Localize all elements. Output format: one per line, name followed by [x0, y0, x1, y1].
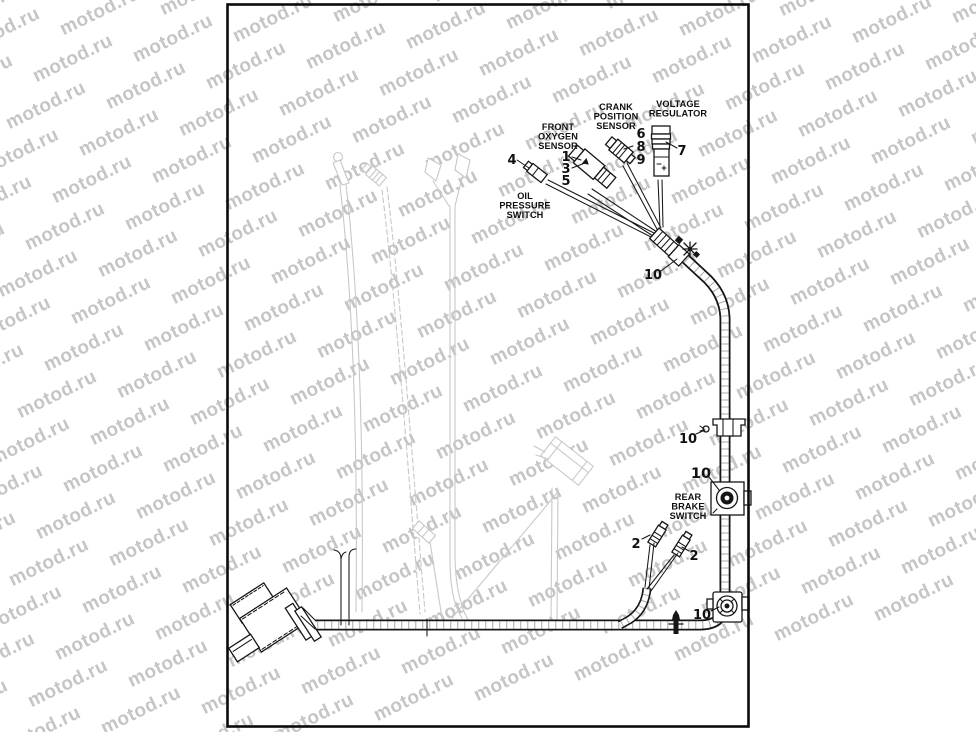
callout-2b: 2 — [689, 549, 698, 564]
label-oil-pressure-switch: OIL PRESSURE SWITCH — [499, 191, 550, 220]
callout-5: 5 — [561, 174, 570, 189]
crank-position-sensor-connector — [604, 135, 637, 166]
label-line: REAR — [675, 492, 702, 502]
label-line: PRESSURE — [499, 201, 550, 211]
callout-9: 9 — [636, 153, 645, 168]
wiring-harness-diagram: FRONT OXYGEN SENSOR CRANK POSITION SENSO… — [0, 0, 976, 732]
callout-2a: 2 — [631, 537, 640, 552]
label-front-oxygen-sensor: FRONT OXYGEN SENSOR — [538, 122, 578, 151]
faint-relay-connector — [452, 437, 593, 624]
label-line: OXYGEN — [538, 132, 578, 142]
bolt-star-icon — [683, 242, 697, 256]
callout-10-brake: 10 — [691, 466, 711, 482]
label-line: SENSOR — [538, 141, 578, 151]
oil-pressure-switch-connector — [523, 160, 547, 182]
brake-branch-tube — [620, 588, 647, 625]
label-rear-brake-switch: REAR BRAKE SWITCH — [670, 492, 707, 521]
callout-10-grommet: 10 — [693, 608, 711, 623]
callout-10-mid: 10 — [679, 432, 697, 447]
rear-brake-switch-connector-a — [645, 521, 669, 589]
faint-branch-eyelet — [333, 153, 362, 613]
label-line: BRAKE — [671, 502, 704, 512]
label-voltage-regulator: VOLTAGE REGULATOR — [649, 99, 708, 119]
label-line: VOLTAGE — [656, 99, 700, 109]
harness-clamp — [700, 419, 745, 436]
label-crank-position-sensor: CRANK POSITION SENSOR — [594, 102, 639, 131]
label-line: OIL — [517, 191, 533, 201]
branch-stub — [334, 549, 356, 625]
callout-7: 7 — [677, 144, 686, 159]
label-line: CRANK — [599, 102, 633, 112]
label-line: POSITION — [594, 112, 639, 122]
label-line: SENSOR — [596, 121, 636, 131]
label-line: SWITCH — [507, 210, 544, 220]
voltage-regulator-connector — [652, 126, 671, 176]
label-line: FRONT — [542, 122, 574, 132]
faint-branch-small-connector — [412, 521, 442, 618]
main-connector-bundle — [229, 583, 321, 662]
label-line: REGULATOR — [649, 109, 708, 119]
label-line: SWITCH — [670, 511, 707, 521]
callout-4: 4 — [507, 153, 516, 168]
callout-10-upper: 10 — [644, 268, 662, 283]
frame-grommet — [707, 592, 749, 622]
catalog-page: motod.rumotod.rumotod.rumotod.rumotod.ru… — [0, 0, 976, 732]
faint-branch-cylinder-connector — [361, 162, 425, 614]
